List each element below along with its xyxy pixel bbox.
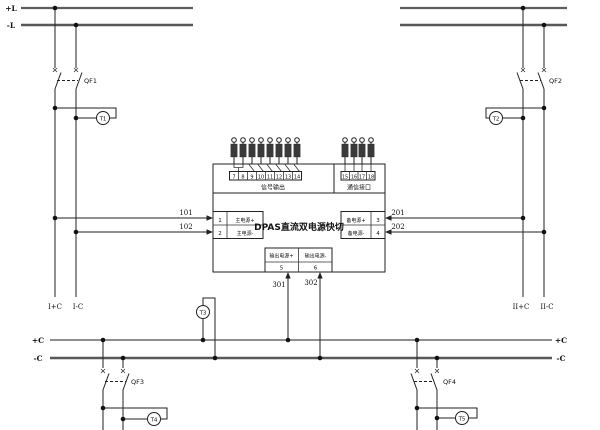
monitor-t5-label: T5 <box>458 416 466 422</box>
pigtail-terminal <box>294 138 300 164</box>
signal-terminal-number: 13 <box>285 174 291 180</box>
backup-input-terminals: 备电源+ 3 备电源- 4 <box>341 212 385 239</box>
device-title: DPAS直流双电源快切 <box>254 221 344 233</box>
wire-202: 202 <box>385 223 544 235</box>
wire-101-label: 101 <box>179 209 192 217</box>
pigtail-terminal <box>351 138 357 164</box>
backup-minus-number: 4 <box>376 231 380 237</box>
monitor-t2: T2 <box>486 108 544 125</box>
monitor-t5: T5 <box>417 408 477 425</box>
bus-label-minus-c-left: -C <box>33 354 42 363</box>
output-minus-label: 输出电源- <box>305 252 327 259</box>
output-minus-number: 6 <box>314 266 318 272</box>
pigtail-terminal <box>258 138 264 164</box>
comm-terminal-strip: 15 16 17 18 <box>341 172 375 181</box>
bus-top-left: +L -L <box>5 4 193 30</box>
main-minus-number: 2 <box>218 231 222 237</box>
wire-201: 201 <box>385 209 523 221</box>
wire-302-label: 302 <box>304 279 317 287</box>
signal-section-label: 信号输出 <box>261 184 285 192</box>
monitor-t4: T4 <box>103 408 167 426</box>
main-plus-label: 主电源+ <box>235 217 254 224</box>
signal-terminal-number: 14 <box>294 174 300 180</box>
drop-label-sec2-minus: II-C <box>540 303 553 311</box>
bus-top-right <box>400 8 567 25</box>
wire-101: 101 <box>55 209 213 221</box>
monitor-t4-label: T4 <box>150 417 158 423</box>
signal-terminal-number: 9 <box>250 174 253 180</box>
signal-terminal-strip: 7 8 9 10 11 12 13 14 <box>230 172 302 181</box>
drop-label-sec1-plus: I+C <box>48 303 62 311</box>
signal-terminal-number: 8 <box>241 174 244 180</box>
pigtail-terminal <box>249 138 255 164</box>
wire-102-label: 102 <box>179 223 192 231</box>
signal-terminal-number: 10 <box>258 174 264 180</box>
pigtail-terminal <box>285 138 291 164</box>
wire-302: 302 <box>304 272 322 358</box>
bus-label-plus-c-right: +C <box>555 336 567 345</box>
schematic-page: +L -L +C -C +C -C QF1 I+C I-C <box>0 0 600 430</box>
output-terminals: 输出电源+ 输出电源- 5 6 <box>265 248 332 272</box>
monitor-t2-label: T2 <box>492 116 500 122</box>
drop-label-sec1-minus: I-C <box>73 303 84 311</box>
signal-terminal-number: 7 <box>232 174 235 180</box>
comm-terminal-number: 17 <box>359 174 365 180</box>
breaker-qf4-symbol <box>411 369 439 390</box>
monitor-t1-label: T1 <box>99 116 107 122</box>
comm-terminal-number: 16 <box>351 174 357 180</box>
backup-plus-label: 备电源+ <box>346 217 365 224</box>
monitor-t3: T3 <box>197 298 216 358</box>
pigtail-terminal <box>368 138 374 164</box>
bus-label-plus-c-left: +C <box>32 336 44 345</box>
drop-label-sec2-plus: II+C <box>513 303 530 311</box>
main-plus-number: 1 <box>218 218 222 224</box>
backup-plus-number: 3 <box>376 218 380 224</box>
comm-terminal-number: 15 <box>342 174 348 180</box>
device-box: 7 8 9 10 11 12 13 14 信号输出 15 16 17 18 通信… <box>213 164 385 272</box>
bus-bottom-control: +C -C +C -C <box>32 336 567 363</box>
wire-201-label: 201 <box>391 209 404 217</box>
comm-section-label: 通信接口 <box>347 184 371 192</box>
bus-label-minus-l: -L <box>7 21 16 30</box>
breaker-qf1-label: QF1 <box>84 77 97 85</box>
signal-terminal-number: 11 <box>267 174 273 180</box>
comm-terminal-number: 18 <box>368 174 374 180</box>
pigtail-terminal <box>342 138 348 164</box>
wire-102: 102 <box>76 223 213 235</box>
backup-minus-label: 备电源- <box>348 230 365 237</box>
bus-label-plus-l: +L <box>5 4 17 13</box>
feeder-qf3: QF3 <box>101 340 144 430</box>
signal-terminal-number: 12 <box>276 174 282 180</box>
pigtail-terminal <box>240 138 246 164</box>
breaker-qf1-symbol <box>53 68 82 89</box>
wire-301: 301 <box>272 272 290 340</box>
breaker-qf3-symbol <box>101 369 129 390</box>
feeder-qf4: QF4 <box>411 340 456 430</box>
output-plus-number: 5 <box>280 266 284 272</box>
breaker-qf4-label: QF4 <box>443 378 456 386</box>
schematic-canvas: +L -L +C -C +C -C QF1 I+C I-C <box>0 0 600 430</box>
breaker-qf2-label: QF2 <box>549 77 562 85</box>
wire-202-label: 202 <box>391 223 404 231</box>
wire-301-label: 301 <box>272 281 285 289</box>
feeder-qf1: QF1 I+C I-C <box>48 8 97 311</box>
pigtail-terminal <box>231 138 237 164</box>
monitor-t3-label: T3 <box>199 310 207 316</box>
breaker-qf2-symbol <box>517 68 546 89</box>
main-minus-label: 主电源- <box>237 230 254 237</box>
pigtail-terminal <box>267 138 273 164</box>
pigtail-terminal <box>359 138 365 164</box>
pigtail-terminal <box>276 138 282 164</box>
breaker-qf3-label: QF3 <box>131 378 144 386</box>
monitor-t1: T1 <box>55 108 116 125</box>
feeder-qf2: QF2 II+C II-C <box>513 8 562 311</box>
output-plus-label: 输出电源+ <box>269 252 293 259</box>
bus-label-minus-c-right: -C <box>556 354 565 363</box>
